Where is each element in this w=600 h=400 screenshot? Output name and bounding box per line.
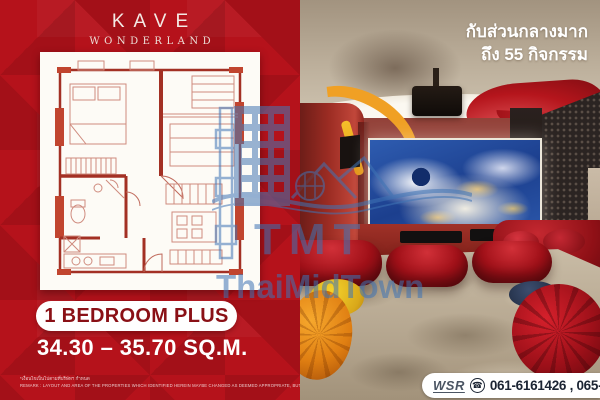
headline-line2: ถึง 55 กิจกรรม (466, 43, 588, 66)
koi-artwork (370, 140, 540, 228)
unit-type-badge: 1 BEDROOM PLUS (36, 301, 237, 331)
left-speaker (340, 135, 360, 169)
projector-mount (433, 68, 439, 88)
projector (412, 86, 462, 116)
phone-icon: ☎ (470, 378, 485, 393)
agent-logo: WSR (433, 378, 465, 393)
disclaimer: *เงื่อนไขเป็นไปตามที่บริษัทฯ กำหนด REMAR… (20, 376, 294, 389)
unit-area: 34.30 – 35.70 SQ.M. (37, 335, 248, 361)
cinema-screen (368, 138, 542, 230)
headline: กับส่วนกลางมาก ถึง 55 กิจกรรม (466, 20, 588, 66)
contact-bar: WSR ☎ 061-6161426 , 065-4496399 (422, 373, 600, 398)
phone-numbers: 061-6161426 , 065-4496399 (490, 378, 600, 393)
brand-subname: WONDERLAND (0, 36, 300, 47)
headline-line1: กับส่วนกลางมาก (466, 20, 588, 43)
brand-logo: KAVE WONDERLAND (0, 11, 300, 47)
ad-poster: KAVE WONDERLAND (0, 0, 600, 400)
soundbar-left (400, 231, 462, 243)
red-bench (472, 241, 552, 283)
floor-plan-card (40, 52, 260, 290)
unit-type-label: 1 BEDROOM PLUS (44, 305, 228, 328)
brand-name: KAVE (0, 11, 300, 33)
floor-plan-drawing (40, 52, 260, 290)
red-bench (386, 245, 468, 287)
disclaimer-english: REMARK : LAYOUT AND AREA OF THE PROPERTI… (20, 383, 294, 389)
theater-photo: กับส่วนกลางมาก ถึง 55 กิจกรรม WSR ☎ 061-… (300, 0, 600, 400)
left-panel: KAVE WONDERLAND (0, 0, 300, 400)
